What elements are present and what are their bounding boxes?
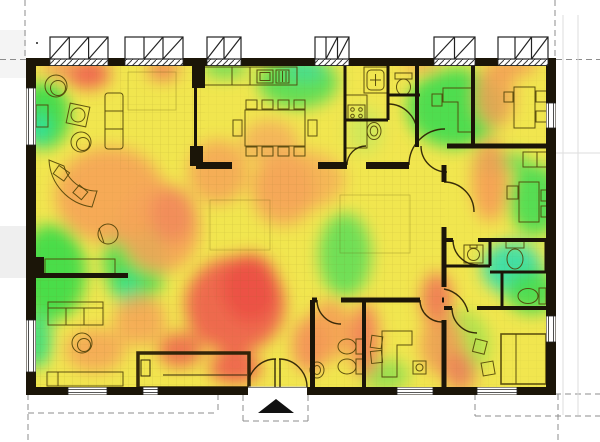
outside-shade-mid-left — [0, 226, 26, 278]
window-bottom — [68, 388, 107, 395]
window-left — [27, 320, 36, 372]
floorplan-canvas[interactable] — [0, 0, 600, 442]
window-group — [50, 37, 108, 59]
window-bottom — [477, 388, 517, 395]
window-group — [315, 37, 349, 59]
window-right — [547, 103, 556, 128]
window-group — [125, 37, 183, 59]
window-group — [434, 37, 475, 59]
window-right — [547, 316, 556, 342]
window-left — [27, 88, 36, 145]
window-bottom — [397, 388, 433, 395]
window-bottom — [143, 388, 158, 395]
window-group — [207, 37, 241, 59]
window-group — [498, 37, 548, 59]
outside-shade-top-left — [0, 30, 26, 78]
survey-dot — [36, 42, 38, 44]
floorplan-viewport — [0, 0, 600, 442]
